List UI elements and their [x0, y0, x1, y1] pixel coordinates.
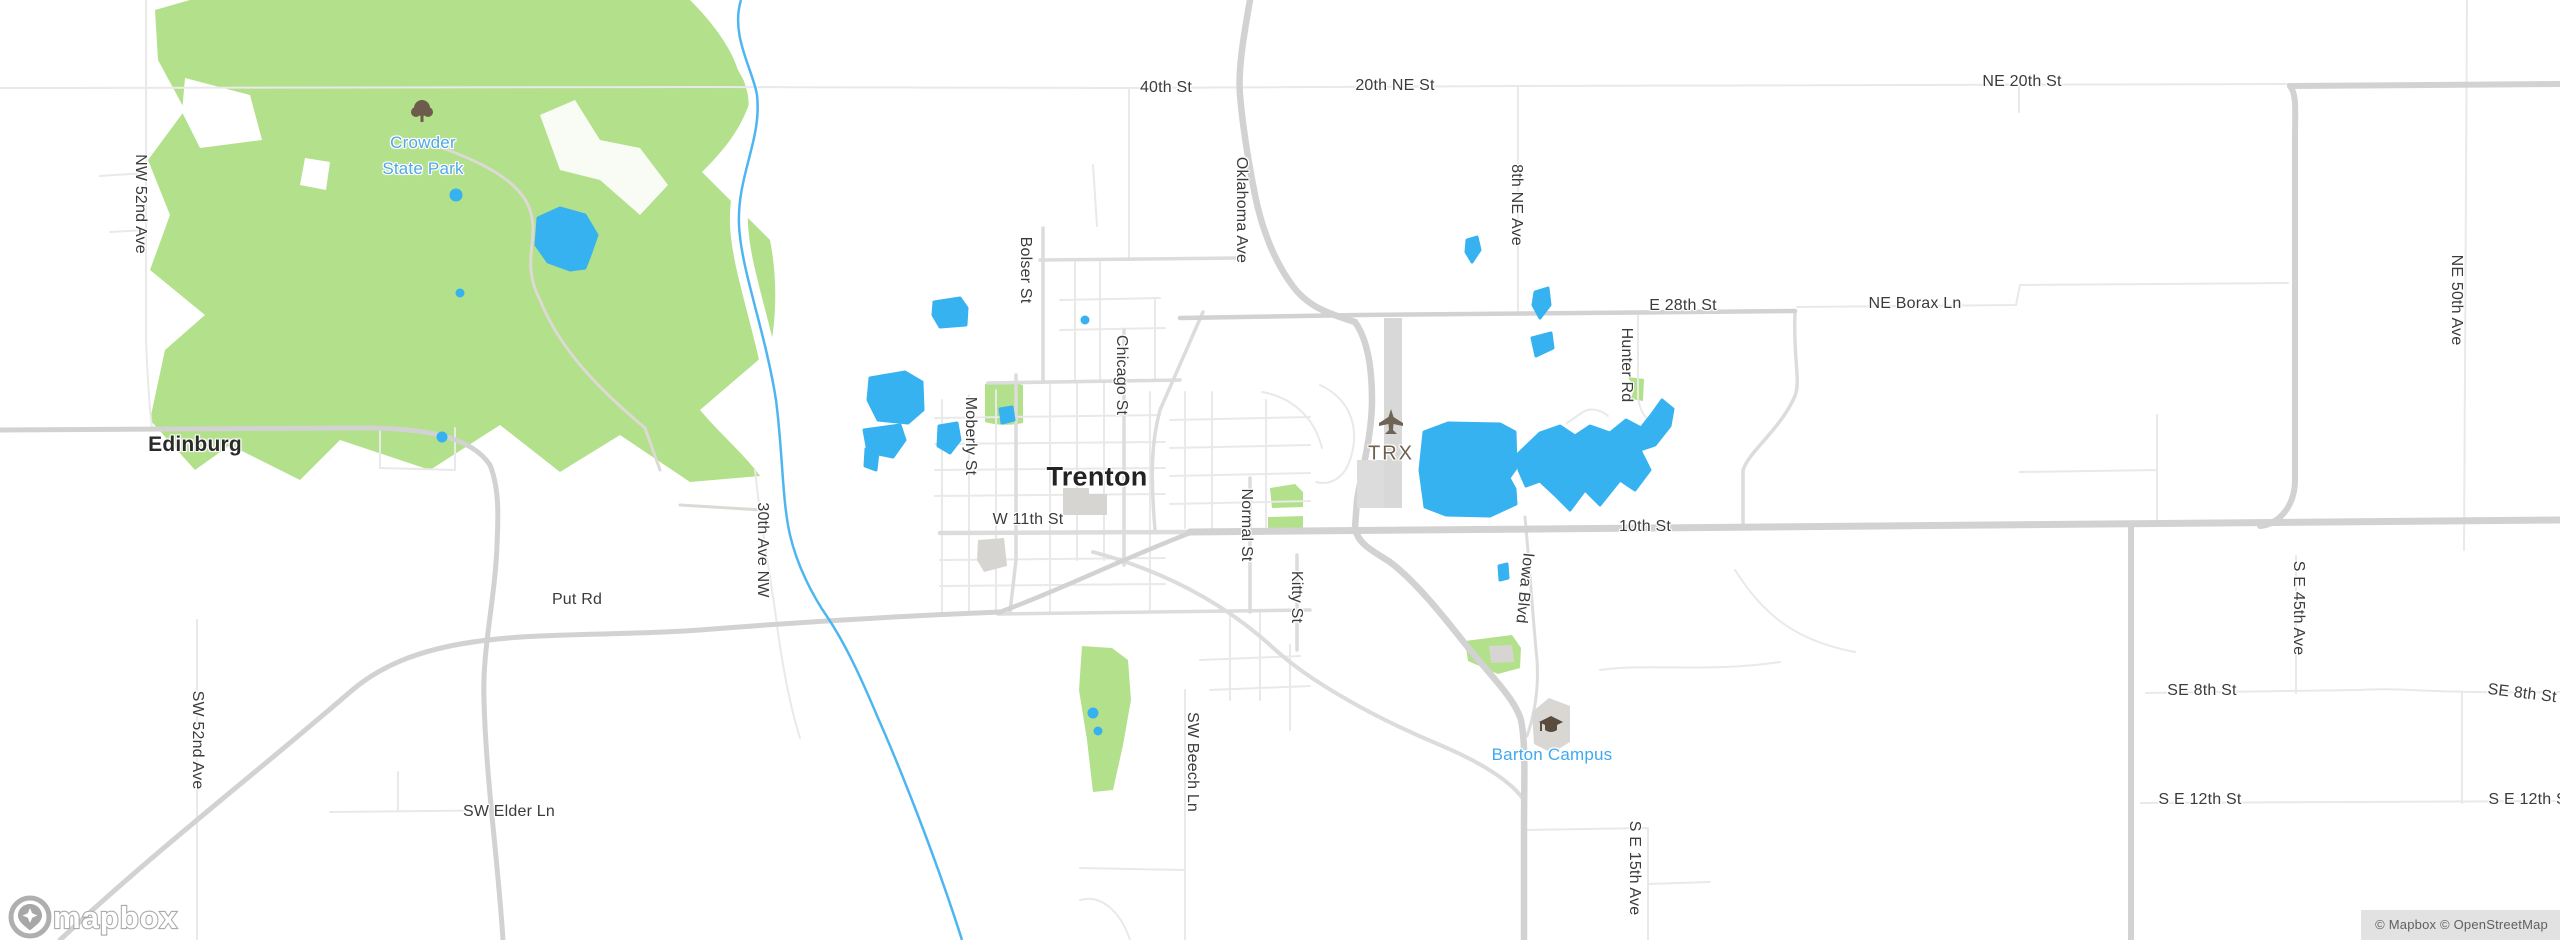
pond-9	[1499, 564, 1508, 580]
road-45th-highway	[2260, 86, 2295, 526]
street-label-10th-st: 10th St	[1619, 518, 1671, 536]
poi-label-barton-campus: Barton Campus	[1492, 745, 1613, 765]
street-label-sw-elder-ln: SW Elder Ln	[463, 803, 555, 821]
street-label-chicago-st: Chicago St	[1112, 335, 1130, 415]
pond-2	[868, 372, 923, 423]
lake-big	[1420, 423, 1516, 516]
attribution-bar[interactable]: © Mapbox © OpenStreetMap	[2361, 910, 2560, 940]
street-label-e-28th-st: E 28th St	[1649, 297, 1717, 315]
pond-dot-1	[438, 433, 446, 441]
pond-park-small	[1000, 407, 1014, 423]
street-label-se-8th-st-west: SE 8th St	[2167, 682, 2236, 700]
mapbox-logo[interactable]: mapbox	[6, 891, 196, 940]
pond-dot-5	[1089, 709, 1097, 717]
mapbox-pin-icon	[11, 898, 49, 936]
street-label-kitty-st: Kitty St	[1287, 571, 1305, 623]
street-label-30th-ave-nw: 30th Ave NW	[753, 502, 771, 597]
road-ne-20th-highway	[2290, 84, 2560, 86]
street-label-20th-ne-st: 20th NE St	[1355, 77, 1434, 95]
street-label-moberly-st: Moberly St	[961, 397, 979, 475]
pond-6	[1466, 237, 1480, 262]
street-label-8th-ne-ave: 8th NE Ave	[1507, 164, 1525, 246]
street-label-ne-50th-ave: NE 50th Ave	[2447, 255, 2465, 346]
street-label-hunter-rd: Hunter Rd	[1617, 328, 1635, 403]
pond-dot-4	[1082, 317, 1088, 323]
mapbox-logo-text: mapbox	[53, 900, 178, 935]
park-label-crowder-state-park: Crowder State Park	[382, 130, 463, 182]
street-label-sw-beech-ln: SW Beech Ln	[1183, 712, 1201, 812]
road-10th-st	[1190, 520, 2560, 532]
park-small-2	[1270, 484, 1303, 508]
pond-dot-6	[1095, 728, 1101, 734]
street-label-se-12th-st-west: S E 12th St	[2158, 791, 2241, 809]
airport-label-trx: TRX	[1368, 443, 1414, 466]
attribution-text[interactable]: © Mapbox © OpenStreetMap	[2375, 917, 2548, 932]
city-label-trenton: Trenton	[1046, 462, 1147, 493]
park-strip-south	[1079, 646, 1131, 792]
street-label-ne-20th-st: NE 20th St	[1982, 73, 2061, 91]
lake-long	[1517, 400, 1673, 510]
park-crowder-polygon	[148, 0, 775, 482]
street-label-oklahoma-ave: Oklahoma Ave	[1232, 157, 1250, 263]
street-label-ne-borax-ln: NE Borax Ln	[1869, 295, 1962, 313]
road-edinburg-put	[0, 428, 503, 940]
street-label-se-15th-ave: S E 15th Ave	[1625, 821, 1643, 916]
pond-8	[1532, 333, 1553, 356]
pond-dot-2	[451, 190, 461, 200]
river	[738, 0, 962, 940]
street-label-put-rd: Put Rd	[552, 591, 602, 609]
street-label-se-12th-st-east: S E 12th St	[2488, 791, 2560, 809]
street-label-w-11th-st: W 11th St	[993, 511, 1064, 529]
pond-4	[865, 449, 878, 470]
pond-1	[933, 298, 967, 327]
street-label-nw-52nd-ave: NW 52nd Ave	[131, 154, 149, 254]
airport-apron	[1357, 460, 1384, 508]
airport-runway	[1384, 318, 1402, 508]
city-label-edinburg: Edinburg	[148, 433, 242, 457]
street-label-bolser-st: Bolser St	[1016, 237, 1034, 304]
street-label-se-45th-ave: S E 45th Ave	[2289, 561, 2307, 656]
street-label-normal-st: Normal St	[1237, 489, 1255, 562]
map-canvas[interactable]: Trenton Edinburg Crowder State Park Bart…	[0, 0, 2560, 940]
street-label-40th-st: 40th St	[1140, 79, 1192, 97]
pond-5	[938, 423, 960, 453]
pond-dot-3	[457, 290, 463, 296]
street-label-sw-52nd-ave: SW 52nd Ave	[188, 691, 206, 790]
